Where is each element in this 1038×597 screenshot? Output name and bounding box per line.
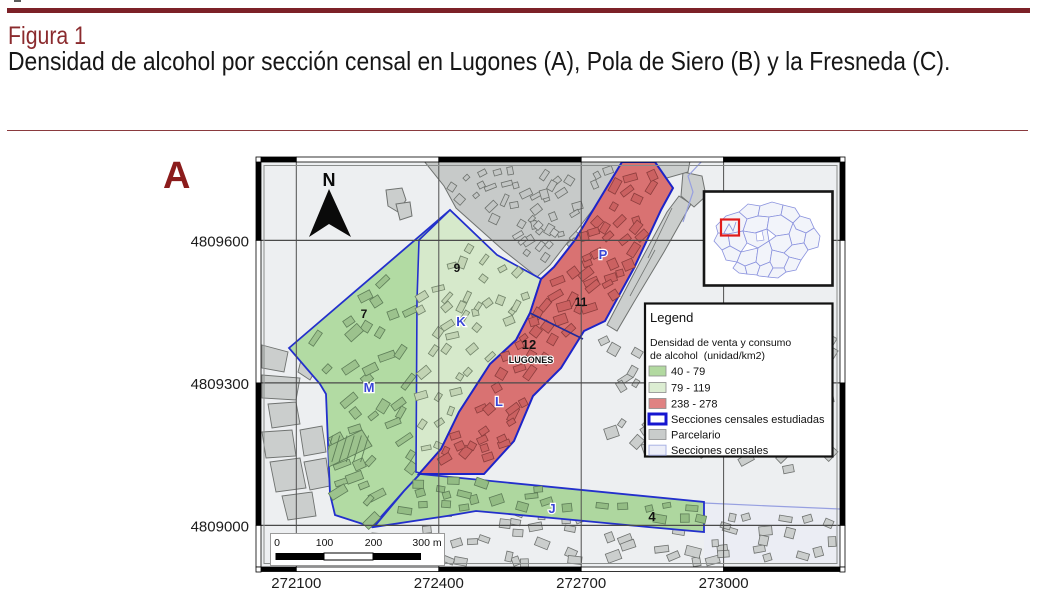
svg-text:J: J xyxy=(548,501,555,516)
svg-text:4: 4 xyxy=(648,509,656,524)
svg-text:Secciones censales: Secciones censales xyxy=(671,445,769,457)
svg-text:200: 200 xyxy=(365,537,383,549)
svg-text:272700: 272700 xyxy=(556,575,606,592)
svg-text:9: 9 xyxy=(454,261,461,275)
svg-text:100: 100 xyxy=(316,537,334,549)
svg-text:0: 0 xyxy=(274,537,280,549)
svg-text:4809000: 4809000 xyxy=(191,519,249,536)
svg-text:L: L xyxy=(495,394,503,409)
svg-text:12: 12 xyxy=(522,337,536,352)
svg-text:4809600: 4809600 xyxy=(191,234,249,251)
svg-text:7: 7 xyxy=(361,307,368,321)
svg-text:M: M xyxy=(364,380,375,395)
svg-text:300 m: 300 m xyxy=(412,537,441,549)
svg-text:K: K xyxy=(456,314,466,329)
svg-text:272100: 272100 xyxy=(271,575,321,592)
svg-text:Legend: Legend xyxy=(650,310,693,325)
svg-text:N: N xyxy=(323,170,336,190)
svg-text:40 - 79: 40 - 79 xyxy=(671,366,705,378)
svg-text:273000: 273000 xyxy=(699,575,749,592)
svg-text:P: P xyxy=(599,247,608,262)
svg-text:272400: 272400 xyxy=(414,575,464,592)
svg-text:Densidad de venta y consumo: Densidad de venta y consumo xyxy=(650,337,791,349)
svg-text:79 - 119: 79 - 119 xyxy=(671,383,711,395)
svg-text:Parcelario: Parcelario xyxy=(671,430,721,442)
svg-text:11: 11 xyxy=(575,295,588,309)
svg-text:238 - 278: 238 - 278 xyxy=(671,399,717,411)
svg-text:Secciones censales estudiadas: Secciones censales estudiadas xyxy=(671,414,825,426)
svg-text:4809300: 4809300 xyxy=(191,376,249,393)
svg-text:de alcohol (unidad/km2): de alcohol (unidad/km2) xyxy=(650,350,765,362)
svg-text:LUGONES: LUGONES xyxy=(509,355,554,365)
